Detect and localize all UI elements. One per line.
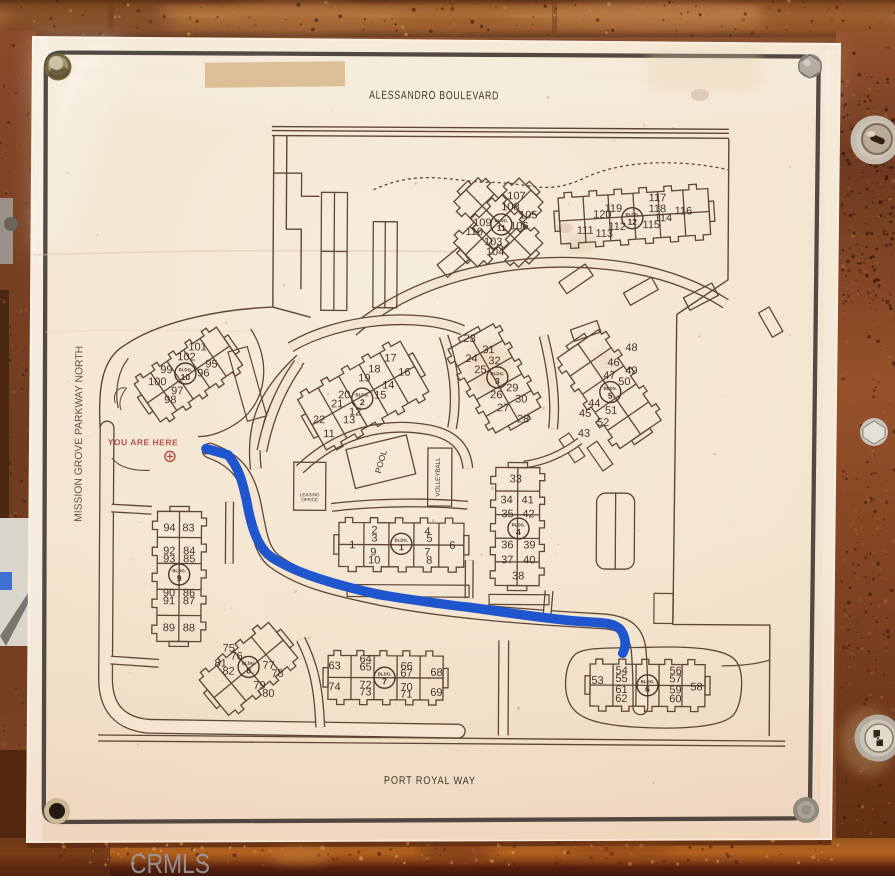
svg-text:116: 116 <box>675 205 693 217</box>
svg-text:21: 21 <box>331 398 343 410</box>
svg-text:65: 65 <box>359 661 371 673</box>
svg-text:3: 3 <box>371 532 377 544</box>
svg-text:106: 106 <box>510 220 528 232</box>
svg-text:45: 45 <box>579 408 591 420</box>
svg-text:82: 82 <box>222 666 234 678</box>
svg-text:19: 19 <box>358 372 370 384</box>
svg-text:37: 37 <box>501 554 513 566</box>
svg-text:22: 22 <box>313 414 325 426</box>
svg-text:47: 47 <box>603 370 615 382</box>
svg-text:53: 53 <box>591 675 603 687</box>
svg-text:CRMLS: CRMLS <box>130 848 210 876</box>
svg-text:50: 50 <box>618 376 630 388</box>
svg-text:41: 41 <box>521 494 533 506</box>
svg-text:17: 17 <box>384 353 396 365</box>
svg-text:120: 120 <box>593 209 611 221</box>
svg-text:8: 8 <box>246 665 251 675</box>
svg-text:108: 108 <box>501 201 519 213</box>
svg-text:23: 23 <box>463 333 475 345</box>
svg-text:52: 52 <box>597 417 609 429</box>
svg-text:62: 62 <box>615 693 627 705</box>
svg-text:10: 10 <box>368 554 380 566</box>
svg-text:33: 33 <box>510 473 522 485</box>
svg-text:13: 13 <box>343 414 355 426</box>
svg-text:16: 16 <box>398 367 410 379</box>
svg-text:MISSION GROVE PARKWAY NORTH: MISSION GROVE PARKWAY NORTH <box>72 346 85 522</box>
svg-text:51: 51 <box>605 405 617 417</box>
svg-text:7: 7 <box>382 676 387 686</box>
svg-text:1: 1 <box>349 539 355 551</box>
svg-text:5: 5 <box>426 533 432 545</box>
svg-text:11: 11 <box>323 428 334 440</box>
svg-text:94: 94 <box>163 522 175 534</box>
svg-text:85: 85 <box>183 553 195 565</box>
svg-text:38: 38 <box>512 570 524 582</box>
svg-text:35: 35 <box>501 508 513 520</box>
svg-text:42: 42 <box>522 508 534 520</box>
svg-text:93: 93 <box>163 553 175 565</box>
svg-text:110: 110 <box>465 226 483 238</box>
svg-text:39: 39 <box>523 539 535 551</box>
svg-text:32: 32 <box>488 355 500 367</box>
svg-text:34: 34 <box>500 494 512 506</box>
svg-text:ALESSANDRO BOULEVARD: ALESSANDRO BOULEVARD <box>369 90 499 103</box>
svg-text:63: 63 <box>328 660 340 672</box>
svg-text:5: 5 <box>608 391 613 401</box>
svg-text:88: 88 <box>183 622 195 634</box>
svg-text:104: 104 <box>486 246 504 258</box>
svg-text:15: 15 <box>374 389 386 401</box>
svg-text:102: 102 <box>177 351 195 363</box>
svg-text:6: 6 <box>449 540 455 552</box>
svg-text:1: 1 <box>399 542 404 552</box>
svg-text:111: 111 <box>577 225 594 237</box>
svg-text:69: 69 <box>430 687 442 699</box>
svg-text:71: 71 <box>400 689 412 701</box>
svg-text:87: 87 <box>183 595 195 607</box>
svg-text:73: 73 <box>359 686 371 698</box>
svg-text:PORT ROYAL WAY: PORT ROYAL WAY <box>384 775 476 788</box>
svg-text:67: 67 <box>400 668 412 680</box>
svg-text:80: 80 <box>262 688 274 700</box>
svg-text:10: 10 <box>181 372 191 382</box>
svg-text:8: 8 <box>426 555 432 567</box>
svg-text:26: 26 <box>490 389 502 401</box>
svg-text:6: 6 <box>645 684 650 694</box>
svg-text:3: 3 <box>495 376 500 386</box>
svg-text:25: 25 <box>474 364 486 376</box>
svg-text:12: 12 <box>628 217 638 227</box>
svg-text:99: 99 <box>160 364 172 376</box>
svg-text:58: 58 <box>690 681 702 693</box>
svg-text:96: 96 <box>197 367 209 379</box>
svg-text:40: 40 <box>523 554 535 566</box>
svg-text:98: 98 <box>164 394 176 406</box>
svg-text:VOLLEYBALL: VOLLEYBALL <box>435 457 442 497</box>
svg-text:OFFICE: OFFICE <box>301 497 318 502</box>
svg-text:43: 43 <box>578 428 590 440</box>
svg-text:68: 68 <box>430 667 442 679</box>
svg-text:36: 36 <box>501 539 513 551</box>
svg-text:9: 9 <box>177 573 182 583</box>
svg-text:30: 30 <box>515 393 527 405</box>
svg-text:28: 28 <box>517 413 529 425</box>
svg-text:4: 4 <box>516 527 521 537</box>
svg-text:48: 48 <box>625 342 637 354</box>
svg-text:83: 83 <box>182 522 194 534</box>
svg-text:78: 78 <box>271 668 283 680</box>
svg-text:YOU ARE HERE: YOU ARE HERE <box>108 437 178 447</box>
svg-text:89: 89 <box>163 622 175 634</box>
svg-text:27: 27 <box>497 402 509 414</box>
svg-text:76: 76 <box>231 651 243 663</box>
svg-text:74: 74 <box>328 681 340 693</box>
svg-text:11: 11 <box>497 223 506 233</box>
svg-text:114: 114 <box>655 212 673 224</box>
svg-text:46: 46 <box>607 357 619 369</box>
svg-text:91: 91 <box>163 595 175 607</box>
svg-text:113: 113 <box>595 228 613 240</box>
svg-text:60: 60 <box>669 693 681 705</box>
svg-text:100: 100 <box>148 376 166 388</box>
